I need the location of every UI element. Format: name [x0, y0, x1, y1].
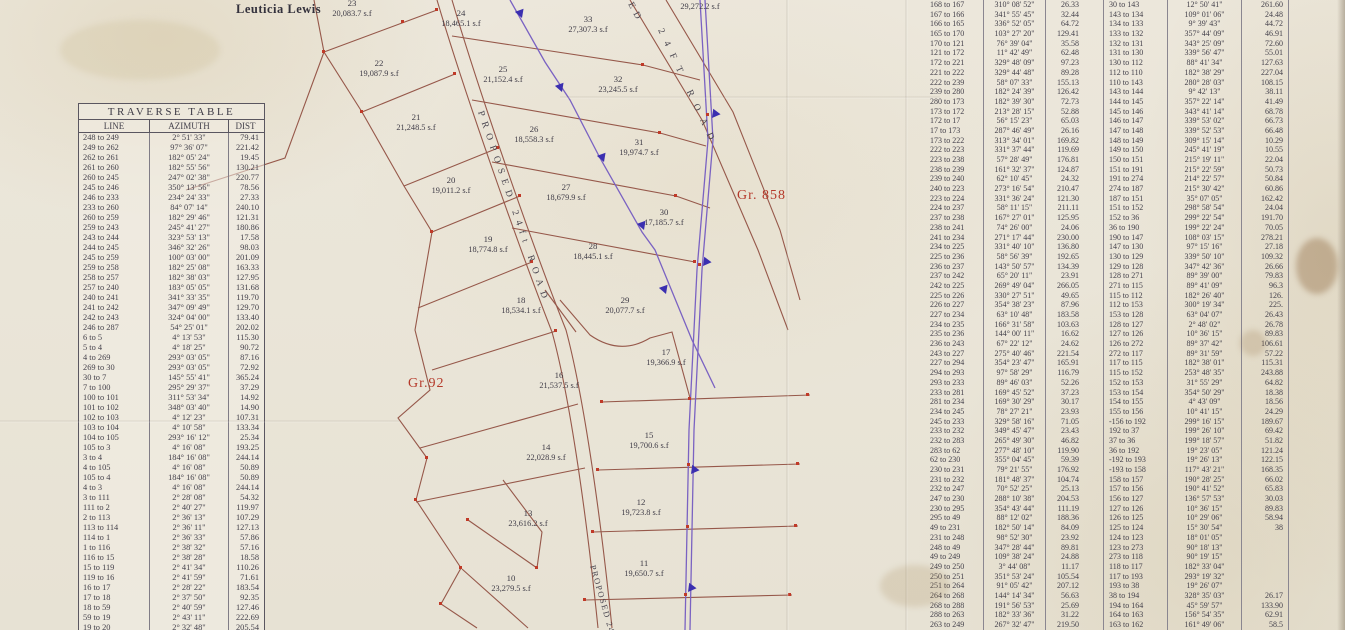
- table-row: 30 to 7145° 55' 41"365.24: [79, 373, 264, 383]
- azimuth-cell: 299° 22' 54": [1167, 213, 1241, 223]
- azimuth-cell: 45° 59' 57": [1167, 601, 1241, 611]
- dist-cell: 136.80: [1045, 242, 1082, 252]
- lot-area: 18,465.1 s.f: [441, 19, 480, 29]
- azimuth-cell: 10° 36' 15": [1167, 329, 1241, 339]
- azimuth-cell: 215° 19' 11": [1167, 155, 1241, 165]
- line-cell: 15 to 119: [79, 563, 149, 573]
- line-cell: 62 to 230: [928, 455, 983, 465]
- azimuth-cell: 245° 41' 27": [149, 223, 228, 233]
- dist-cell: 240.10: [228, 203, 261, 213]
- line-cell: 244 to 245: [79, 243, 149, 253]
- table-row: 239 to 24062° 10' 45"24.32: [928, 174, 1082, 184]
- azimuth-cell: 109° 38' 24": [983, 552, 1045, 562]
- line-cell: 115 to 112: [1104, 291, 1167, 301]
- azimuth-cell: 191° 56' 53": [983, 601, 1045, 611]
- dist-cell: 26.66: [1241, 262, 1288, 272]
- line-cell: 243 to 244: [79, 233, 149, 243]
- table-row: 62 to 230355° 04' 45"59.39: [928, 455, 1082, 465]
- lot-area: 19,974.7 s.f: [619, 148, 658, 158]
- top-right-road-label-fragment: ED: [625, 1, 644, 26]
- table-row: 245 to 233329° 58' 16"71.05: [928, 417, 1082, 427]
- table-row: 227 to 294354° 23' 47"165.91: [928, 358, 1082, 368]
- dist-cell: 110.26: [228, 563, 261, 573]
- azimuth-cell: 182° 38' 29": [1167, 68, 1241, 78]
- line-cell: 130 to 112: [1104, 58, 1167, 68]
- dist-cell: 54.32: [228, 493, 261, 503]
- line-cell: 258 to 257: [79, 273, 149, 283]
- azimuth-cell: 293° 03' 05": [149, 353, 228, 363]
- dist-cell: 106.61: [1241, 339, 1288, 349]
- table-row: 15 to 1192° 41' 34"110.26: [79, 563, 264, 573]
- table-row: 241 to 234271° 17' 44"230.00: [928, 233, 1082, 243]
- dist-cell: 98.03: [228, 243, 261, 253]
- table-row: 221 to 222329° 44' 48"89.28: [928, 68, 1082, 78]
- azimuth-cell: 253° 48' 35": [1167, 368, 1241, 378]
- azimuth-cell: 4° 10' 58": [149, 423, 228, 433]
- lot-area: 19,087.9 s.f: [359, 69, 398, 79]
- table-row: 4 to 1054° 16' 08"50.89: [79, 463, 264, 473]
- line-cell: 126 to 125: [1104, 513, 1167, 523]
- table-row: 146 to 147339° 53' 02"66.73: [1104, 116, 1288, 126]
- dist-cell: 32.44: [1045, 10, 1082, 20]
- azimuth-cell: 79° 21' 55": [983, 465, 1045, 475]
- dist-cell: 30.03: [1241, 494, 1288, 504]
- table-row: 168 to 167310° 08' 52"26.33: [928, 0, 1082, 10]
- lot-area: 21,537.5 s.f: [539, 381, 578, 391]
- line-cell: 225 to 226: [928, 291, 983, 301]
- line-cell: 164 to 163: [1104, 610, 1167, 620]
- dist-cell: 50.89: [228, 463, 261, 473]
- table-row: 260 to 259182° 29' 46"121.31: [79, 213, 264, 223]
- lot-area: 18,774.8 s.f: [468, 245, 507, 255]
- lot-label-29: 2920,077.7 s.f: [605, 295, 644, 316]
- azimuth-cell: 9° 39' 43": [1167, 19, 1241, 29]
- table-row: 235 to 236144° 00' 11"16.62: [928, 329, 1082, 339]
- table-row: 225 to 226330° 27' 51"49.65: [928, 291, 1082, 301]
- dist-cell: 211.11: [1045, 203, 1082, 213]
- azimuth-cell: 63° 10' 48": [983, 310, 1045, 320]
- line-cell: 128 to 127: [1104, 320, 1167, 330]
- azimuth-cell: 349° 45' 47": [983, 426, 1045, 436]
- dist-cell: 69.42: [1241, 426, 1288, 436]
- line-cell: 272 to 117: [1104, 349, 1167, 359]
- traverse-table: TRAVERSE TABLE LINE AZIMUTH DIST 248 to …: [78, 103, 265, 630]
- azimuth-cell: 343° 41' 14": [1167, 107, 1241, 117]
- table-row: 242 to 225269° 49' 04"266.05: [928, 281, 1082, 291]
- lot-label-26: 2618,558.3 s.f: [514, 124, 553, 145]
- dist-cell: 71.61: [228, 573, 261, 583]
- lot-number: 29: [621, 295, 630, 305]
- dist-cell: 46.82: [1045, 436, 1082, 446]
- table-row: 128 to 27189° 39' 00"79.83: [1104, 271, 1288, 281]
- lot-area: 19,723.8 s.f: [621, 508, 660, 518]
- azimuth-cell: 31° 55' 29": [1167, 378, 1241, 388]
- dist-cell: 92.35: [228, 593, 261, 603]
- dist-cell: 14.90: [228, 403, 261, 413]
- table-row: 233 to 26084° 07' 14"240.10: [79, 203, 264, 213]
- line-cell: 172 to 17: [928, 116, 983, 126]
- table-row: 18 to 592° 40' 59"127.46: [79, 603, 264, 613]
- table-row: 262 to 261182° 05' 24"19.45: [79, 153, 264, 163]
- table-row: 104 to 105293° 16' 12"25.34: [79, 433, 264, 443]
- line-cell: 248 to 49: [928, 543, 983, 553]
- lot-label-15: 1519,700.6 s.f: [629, 430, 668, 451]
- line-cell: 36 to 190: [1104, 223, 1167, 233]
- line-cell: 117 to 193: [1104, 572, 1167, 582]
- dist-cell: 244.14: [228, 483, 261, 493]
- line-cell: 30 to 143: [1104, 0, 1167, 10]
- dist-cell: 133.34: [228, 423, 261, 433]
- table-row: 133 to 132357° 44' 09"46.91: [1104, 29, 1288, 39]
- dist-cell: 64.82: [1241, 378, 1288, 388]
- line-cell: 165 to 170: [928, 29, 983, 39]
- dist-cell: 90.72: [228, 343, 261, 353]
- azimuth-cell: 97° 15' 16": [1167, 242, 1241, 252]
- line-cell: 170 to 121: [928, 39, 983, 49]
- table-row: 234 to 235166° 31' 58"103.63: [928, 320, 1082, 330]
- table-row: 243 to 227275° 40' 46"221.54: [928, 349, 1082, 359]
- azimuth-cell: 19° 26' 13": [1167, 455, 1241, 465]
- dist-cell: 26.33: [1045, 0, 1082, 10]
- table-row: 147 to 13097° 15' 16"27.18: [1104, 242, 1288, 252]
- dist-cell: 49.65: [1045, 291, 1082, 301]
- line-cell: 230 to 295: [928, 504, 983, 514]
- dist-cell: 107.31: [228, 413, 261, 423]
- azimuth-cell: 58° 07' 33": [983, 78, 1045, 88]
- lot-area: 19,700.6 s.f: [629, 441, 668, 451]
- line-cell: 163 to 162: [1104, 620, 1167, 630]
- line-cell: 245 to 259: [79, 253, 149, 263]
- azimuth-cell: 273° 16' 54": [983, 184, 1045, 194]
- line-cell: 101 to 102: [79, 403, 149, 413]
- dist-cell: 41.49: [1241, 97, 1288, 107]
- dist-cell: 119.90: [1045, 446, 1082, 456]
- table-row: 248 to 2492° 51' 33"79.41: [79, 133, 264, 143]
- dist-cell: 84.09: [1045, 523, 1082, 533]
- table-row: 261 to 260182° 55' 56"130.21: [79, 163, 264, 173]
- table-row: 30 to 14312° 50' 41"261.60: [1104, 0, 1288, 10]
- dist-cell: 72.60: [1241, 39, 1288, 49]
- table-row: 172 to 1756° 15' 23"65.03: [928, 116, 1082, 126]
- table-row: 165 to 170103° 27' 20"129.41: [928, 29, 1082, 39]
- line-cell: 239 to 280: [928, 87, 983, 97]
- azimuth-cell: 265° 49' 30": [983, 436, 1045, 446]
- line-cell: 273 to 118: [1104, 552, 1167, 562]
- dist-cell: 24.88: [1045, 552, 1082, 562]
- azimuth-cell: 245° 41' 19": [1167, 145, 1241, 155]
- azimuth-cell: 324° 04' 00": [149, 313, 228, 323]
- azimuth-cell: 58° 56' 39": [983, 252, 1045, 262]
- dist-cell: 50.84: [1241, 174, 1288, 184]
- line-cell: 152 to 153: [1104, 378, 1167, 388]
- dist-cell: 97.23: [1045, 58, 1082, 68]
- azimuth-cell: 10° 36' 15": [1167, 504, 1241, 514]
- line-cell: 38 to 194: [1104, 591, 1167, 601]
- table-row: 116 to 152° 38' 28"18.58: [79, 553, 264, 563]
- dist-cell: 79.83: [1241, 271, 1288, 281]
- azimuth-cell: 183° 05' 05": [149, 283, 228, 293]
- azimuth-cell: 161° 32' 37": [983, 165, 1045, 175]
- lot-number: 15: [645, 430, 654, 440]
- table-row: 247 to 230288° 10' 38"204.53: [928, 494, 1082, 504]
- line-cell: 7 to 100: [79, 383, 149, 393]
- table-row: 257 to 240183° 05' 05"131.68: [79, 283, 264, 293]
- dist-cell: 62.48: [1045, 48, 1082, 58]
- line-cell: 227 to 234: [928, 310, 983, 320]
- table-row: 194 to 16445° 59' 57"133.90: [1104, 601, 1288, 611]
- line-cell: 234 to 225: [928, 242, 983, 252]
- table-row: 234 to 225331° 40' 10"136.80: [928, 242, 1082, 252]
- dist-cell: 96.3: [1241, 281, 1288, 291]
- lot-number: 13: [524, 508, 533, 518]
- dist-cell: 230.00: [1045, 233, 1082, 243]
- dist-cell: 202.02: [228, 323, 261, 333]
- azimuth-cell: 341° 55' 45": [983, 10, 1045, 20]
- table-row: 244 to 245346° 32' 26"98.03: [79, 243, 264, 253]
- line-cell: 146 to 147: [1104, 116, 1167, 126]
- line-cell: 115 to 152: [1104, 368, 1167, 378]
- dist-cell: 62.91: [1241, 610, 1288, 620]
- line-cell: 112 to 153: [1104, 300, 1167, 310]
- table-row: 245 to 259100° 03' 00"201.09: [79, 253, 264, 263]
- azimuth-cell: 169° 45' 52": [983, 388, 1045, 398]
- dist-cell: [1241, 533, 1288, 543]
- line-cell: 151 to 152: [1104, 203, 1167, 213]
- dist-cell: 23.92: [1045, 533, 1082, 543]
- table-row: 225 to 23658° 56' 39"192.65: [928, 252, 1082, 262]
- lot-label-12: 1219,723.8 s.f: [621, 497, 660, 518]
- line-cell: 114 to 1: [79, 533, 149, 543]
- dist-cell: 24.29: [1241, 407, 1288, 417]
- azimuth-cell: 295° 29' 37": [149, 383, 228, 393]
- line-cell: -192 to 193: [1104, 455, 1167, 465]
- dist-cell: 87.16: [228, 353, 261, 363]
- dist-cell: 365.24: [228, 373, 261, 383]
- azimuth-cell: 182° 39' 30": [983, 97, 1045, 107]
- azimuth-cell: 89° 46' 03": [983, 378, 1045, 388]
- azimuth-cell: 12° 50' 41": [1167, 0, 1241, 10]
- lot-number: 21: [412, 112, 421, 122]
- dist-cell: 129.41: [1045, 29, 1082, 39]
- dist-cell: 23.93: [1045, 407, 1082, 417]
- dist-cell: 162.42: [1241, 194, 1288, 204]
- table-row: 260 to 245247° 02' 38"220.77: [79, 173, 264, 183]
- dist-cell: 66.02: [1241, 475, 1288, 485]
- dist-cell: 115.31: [1241, 358, 1288, 368]
- line-cell: 105 to 3: [79, 443, 149, 453]
- azimuth-cell: 97° 58' 29": [983, 368, 1045, 378]
- line-cell: 247 to 230: [928, 494, 983, 504]
- lot-number: 18: [517, 295, 526, 305]
- dist-cell: 25.13: [1045, 484, 1082, 494]
- line-cell: 223 to 224: [928, 194, 983, 204]
- dist-cell: 64.72: [1045, 19, 1082, 29]
- line-cell: 124 to 123: [1104, 533, 1167, 543]
- azimuth-cell: 143° 50' 57": [983, 262, 1045, 272]
- lot-number: 10: [507, 573, 516, 583]
- lot-number: 19: [484, 234, 493, 244]
- dist-cell: 183.54: [228, 583, 261, 593]
- dist-cell: 111.19: [1045, 504, 1082, 514]
- line-cell: 245 to 233: [928, 417, 983, 427]
- table-row: 231 to 24898° 52' 30"23.92: [928, 533, 1082, 543]
- table-row: 126 to 27289° 37' 42"106.61: [1104, 339, 1288, 349]
- table-row: 227 to 23463° 10' 48"183.58: [928, 310, 1082, 320]
- traverse-table-body: 248 to 2492° 51' 33"79.41249 to 26297° 3…: [79, 133, 264, 630]
- lot-area: 21,248.5 s.f: [396, 123, 435, 133]
- line-cell: 193 to 38: [1104, 581, 1167, 591]
- line-cell: 237 to 242: [928, 271, 983, 281]
- dist-cell: 103.63: [1045, 320, 1082, 330]
- azimuth-cell: 288° 10' 38": [983, 494, 1045, 504]
- dist-cell: 72.92: [228, 363, 261, 373]
- azimuth-cell: 182° 38' 03": [149, 273, 228, 283]
- table-row: 295 to 4988° 12' 02"188.36: [928, 513, 1082, 523]
- dist-cell: 133.90: [1241, 601, 1288, 611]
- azimuth-cell: 293° 03' 05": [149, 363, 228, 373]
- azimuth-cell: 2° 48' 02": [1167, 320, 1241, 330]
- dist-cell: 24.32: [1045, 174, 1082, 184]
- line-cell: 240 to 223: [928, 184, 983, 194]
- azimuth-cell: 89° 39' 00": [1167, 271, 1241, 281]
- line-cell: 234 to 245: [928, 407, 983, 417]
- lot-number: 24: [457, 8, 466, 18]
- azimuth-cell: 145° 55' 41": [149, 373, 228, 383]
- dist-cell: 37.23: [1045, 388, 1082, 398]
- table-row: 153 to 12863° 04' 07"26.43: [1104, 310, 1288, 320]
- dist-cell: 37.29: [228, 383, 261, 393]
- scanned-survey-plat: PROPOSED 24ft ROAD ED 24FT ROAD PROPOSED…: [0, 0, 1345, 630]
- dist-cell: 11.17: [1045, 562, 1082, 572]
- dist-cell: 266.05: [1045, 281, 1082, 291]
- table-row: 241 to 242347° 09' 49"129.70: [79, 303, 264, 313]
- azimuth-cell: 18° 01' 05": [1167, 533, 1241, 543]
- dist-cell: 18.56: [1241, 397, 1288, 407]
- azimuth-cell: 280° 28' 03": [1167, 78, 1241, 88]
- azimuth-cell: 309° 15' 14": [1167, 136, 1241, 146]
- table-row: 127 to 12610° 36' 15"89.83: [1104, 329, 1288, 339]
- azimuth-cell: 331° 37' 44": [983, 145, 1045, 155]
- line-cell: 246 to 233: [79, 193, 149, 203]
- table-row: -156 to 192299° 16' 15"189.67: [1104, 417, 1288, 427]
- azimuth-cell: 182° 38' 01": [1167, 358, 1241, 368]
- line-cell: 249 to 250: [928, 562, 983, 572]
- line-cell: 263 to 249: [928, 620, 983, 630]
- line-cell: 242 to 225: [928, 281, 983, 291]
- azimuth-cell: 89° 31' 59": [1167, 349, 1241, 359]
- line-cell: 156 to 127: [1104, 494, 1167, 504]
- table-row: 36 to 190199° 22' 24"70.05: [1104, 223, 1288, 233]
- table-row: 193 to 3819° 26' 07": [1104, 581, 1288, 591]
- table-row: 103 to 1044° 10' 58"133.34: [79, 423, 264, 433]
- azimuth-cell: 347° 28' 44": [983, 543, 1045, 553]
- azimuth-cell: 65° 20' 11": [983, 271, 1045, 281]
- line-cell: 5 to 4: [79, 343, 149, 353]
- line-cell: 293 to 233: [928, 378, 983, 388]
- dist-cell: 220.77: [228, 173, 261, 183]
- lot-label-30: 3017,185.7 s.f: [644, 207, 683, 228]
- dist-cell: 51.82: [1241, 436, 1288, 446]
- dist-cell: 107.29: [228, 513, 261, 523]
- lot-label-25: 2521,152.4 s.f: [483, 64, 522, 85]
- lot-label-17: 1719,366.9 s.f: [646, 347, 685, 368]
- dist-cell: 57.16: [228, 543, 261, 553]
- line-cell: 280 to 173: [928, 97, 983, 107]
- azimuth-cell: 184° 16' 08": [149, 453, 228, 463]
- azimuth-cell: 108° 03' 15": [1167, 233, 1241, 243]
- azimuth-cell: 299° 16' 15": [1167, 417, 1241, 427]
- line-cell: 264 to 268: [928, 591, 983, 601]
- table-row: 1 to 1162° 38' 32"57.16: [79, 543, 264, 553]
- table-row: 223 to 224331° 36' 24"121.30: [928, 194, 1082, 204]
- table-row: 246 to 28754° 25' 01"202.02: [79, 323, 264, 333]
- dist-cell: 122.15: [1241, 455, 1288, 465]
- line-cell: 239 to 240: [928, 174, 983, 184]
- table-row: 233 to 232349° 45' 47"23.43: [928, 426, 1082, 436]
- azimuth-cell: 182° 25' 08": [149, 263, 228, 273]
- lot-label-27: 2718,679.9 s.f: [546, 182, 585, 203]
- lot-label-22: 2219,087.9 s.f: [359, 58, 398, 79]
- dist-cell: 204.53: [1045, 494, 1082, 504]
- line-cell: 269 to 30: [79, 363, 149, 373]
- table-row: 232 to 283265° 49' 30"46.82: [928, 436, 1082, 446]
- dist-cell: 133.40: [228, 313, 261, 323]
- azimuth-cell: 298° 58' 54": [1167, 203, 1241, 213]
- dist-cell: 219.50: [1045, 620, 1082, 630]
- lot-number: 31: [635, 137, 644, 147]
- line-cell: 143 to 144: [1104, 87, 1167, 97]
- line-cell: 145 to 146: [1104, 107, 1167, 117]
- azimuth-cell: 78° 27' 21": [983, 407, 1045, 417]
- dist-cell: 58.94: [1241, 513, 1288, 523]
- table-row: 236 to 237143° 50' 57"134.39: [928, 262, 1082, 272]
- dist-cell: 10.55: [1241, 145, 1288, 155]
- lot-label-11: 1119,650.7 s.f: [624, 558, 663, 579]
- line-cell: 2 to 113: [79, 513, 149, 523]
- dist-cell: 16.62: [1045, 329, 1082, 339]
- line-cell: 4 to 269: [79, 353, 149, 363]
- azimuth-cell: 182° 55' 56": [149, 163, 228, 173]
- dist-cell: 60.86: [1241, 184, 1288, 194]
- table-row: 239 to 280182° 24' 39"126.42: [928, 87, 1082, 97]
- azimuth-cell: 109° 01' 06": [1167, 10, 1241, 20]
- dist-cell: 192.65: [1045, 252, 1082, 262]
- azimuth-cell: 169° 30' 29": [983, 397, 1045, 407]
- azimuth-cell: 90° 19' 15": [1167, 552, 1241, 562]
- line-cell: 143 to 134: [1104, 10, 1167, 20]
- table-row: 230 to 23179° 21' 55"176.92: [928, 465, 1082, 475]
- line-cell: 261 to 260: [79, 163, 149, 173]
- dist-cell: 119.69: [1045, 145, 1082, 155]
- azimuth-cell: 100° 03' 00": [149, 253, 228, 263]
- dist-cell: 115.30: [228, 333, 261, 343]
- dist-cell: 79.41: [228, 133, 261, 143]
- table-row: 167 to 166341° 55' 45"32.44: [928, 10, 1082, 20]
- line-cell: 173 to 222: [928, 136, 983, 146]
- azimuth-cell: 3° 44' 08": [983, 562, 1045, 572]
- line-cell: 100 to 101: [79, 393, 149, 403]
- dist-cell: 58.5: [1241, 620, 1288, 630]
- table-row: 263 to 249267° 32' 47"219.50: [928, 620, 1082, 630]
- dist-cell: 38: [1241, 523, 1288, 533]
- azimuth-cell: 2° 41' 34": [149, 563, 228, 573]
- table-row: 173 to 222313° 34' 01"169.82: [928, 136, 1082, 146]
- table-row: 158 to 157190° 28' 25"66.02: [1104, 475, 1288, 485]
- line-cell: 150 to 151: [1104, 155, 1167, 165]
- azimuth-cell: 336° 52' 05": [983, 19, 1045, 29]
- azimuth-cell: 11° 42' 49": [983, 48, 1045, 58]
- dist-cell: 169.82: [1045, 136, 1082, 146]
